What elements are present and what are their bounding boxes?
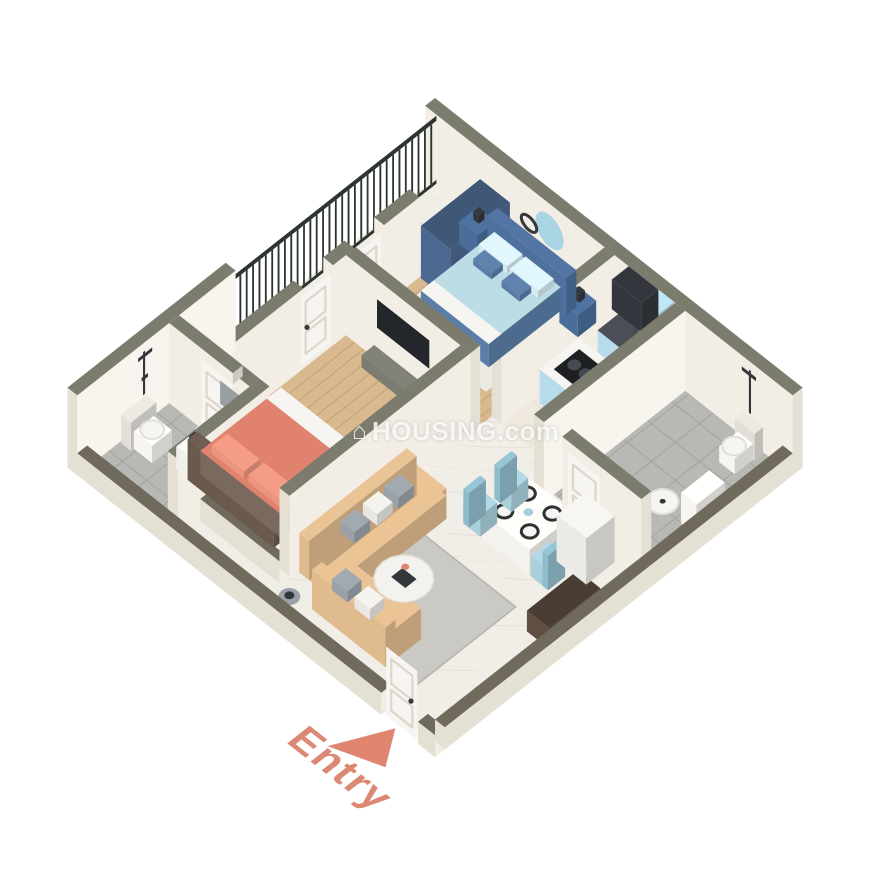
toilet-seat [140,420,164,439]
floorplan-3d-render: Entry [0,0,870,870]
toilet-seat [722,437,746,456]
floorplan-canvas: Entry ⌂ HOUSING.com [0,0,870,870]
plate [521,525,538,538]
drain [660,499,666,504]
